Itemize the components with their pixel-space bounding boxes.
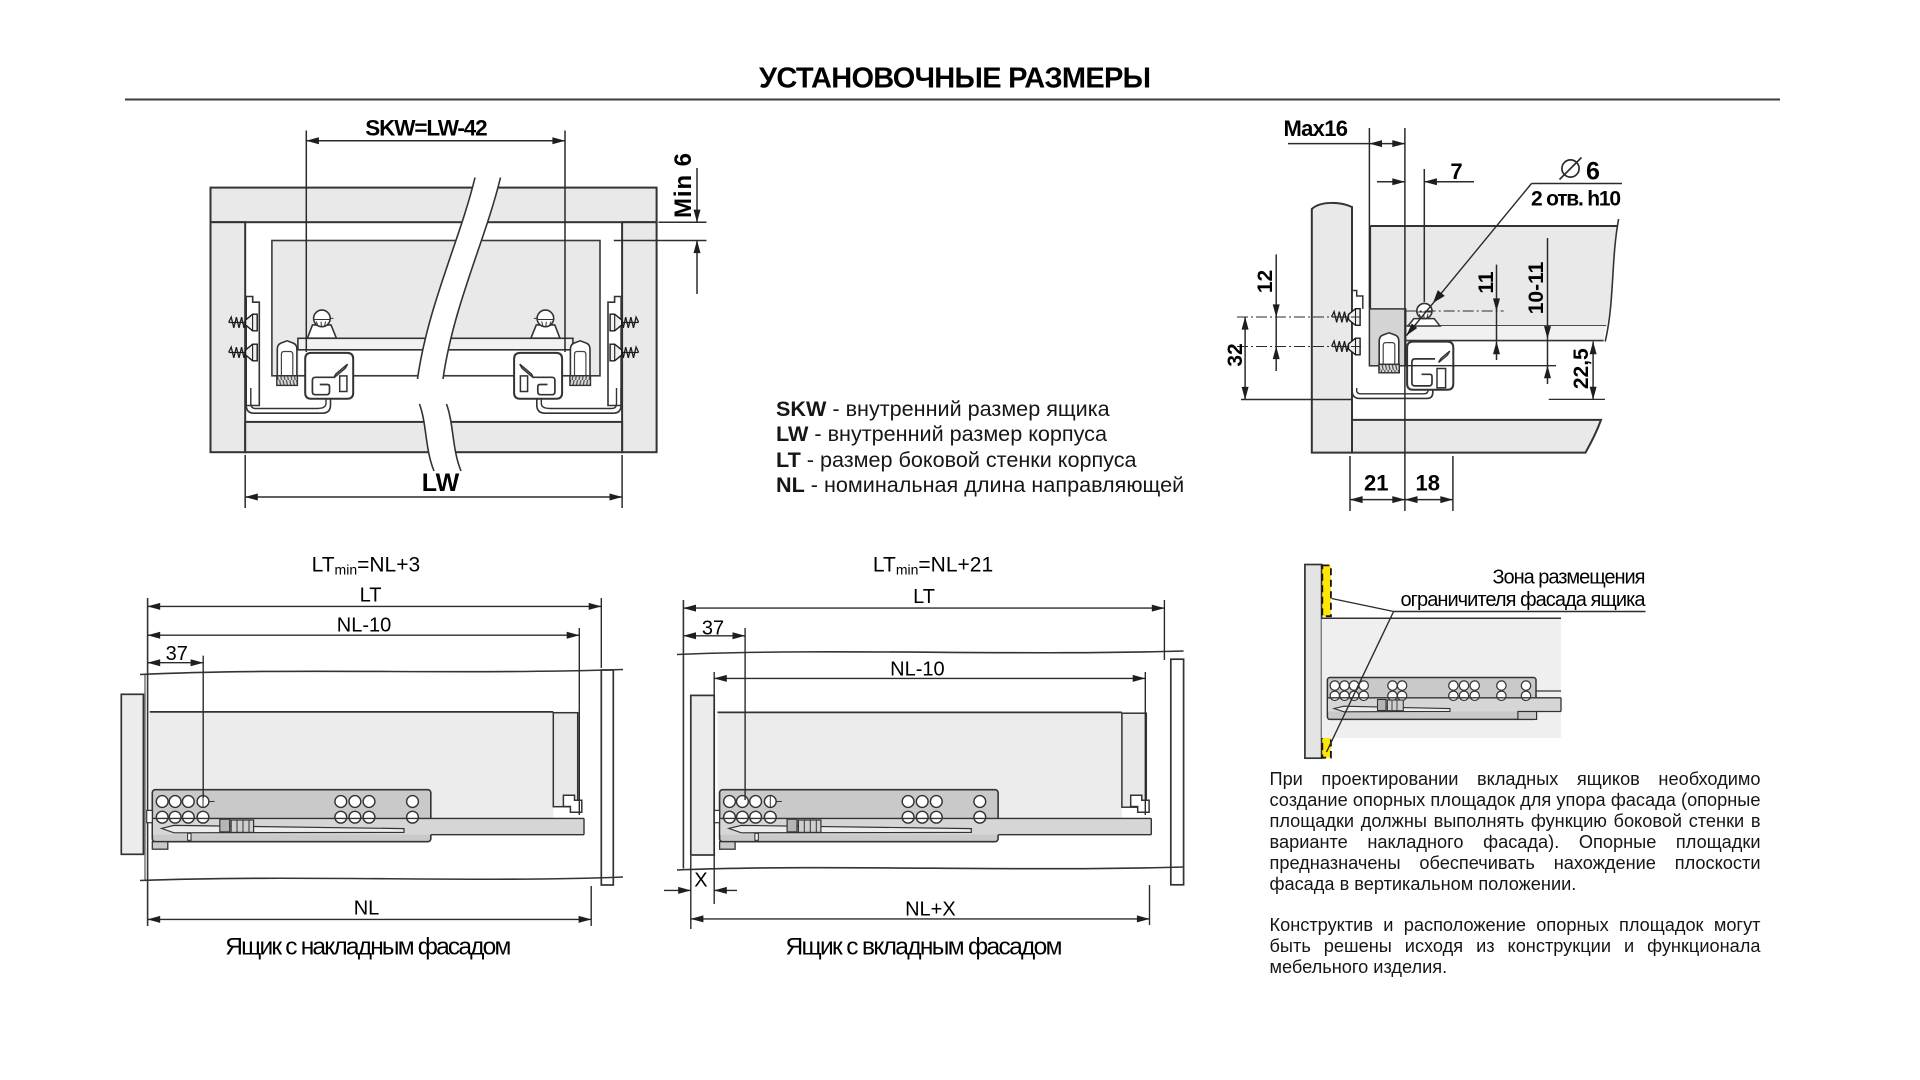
svg-text:NL-10: NL-10 bbox=[890, 658, 944, 680]
svg-text:11: 11 bbox=[1475, 271, 1498, 294]
svg-text:LTmin=NL+21: LTmin=NL+21 bbox=[873, 554, 993, 578]
svg-text:32: 32 bbox=[1224, 343, 1247, 366]
svg-text:ограничителя фасада ящика: ограничителя фасада ящика bbox=[1401, 589, 1647, 611]
svg-text:SKW=LW-42: SKW=LW-42 bbox=[365, 116, 487, 141]
svg-text:Ящик с накладным фасадом: Ящик с накладным фасадом bbox=[225, 934, 511, 961]
svg-text:37: 37 bbox=[702, 617, 724, 639]
svg-text:12: 12 bbox=[1254, 270, 1277, 293]
svg-text:УСТАНОВОЧНЫЕ РАЗМЕРЫ: УСТАНОВОЧНЫЕ РАЗМЕРЫ bbox=[759, 63, 1151, 95]
svg-text:6: 6 bbox=[1586, 158, 1600, 186]
svg-text:LT: LT bbox=[360, 585, 382, 607]
svg-text:10-11: 10-11 bbox=[1525, 261, 1548, 314]
svg-text:22,5: 22,5 bbox=[1570, 348, 1593, 389]
svg-text:NL: NL bbox=[354, 898, 380, 920]
svg-text:LW: LW bbox=[422, 469, 460, 497]
svg-text:Min 6: Min 6 bbox=[670, 153, 697, 218]
svg-text:37: 37 bbox=[166, 643, 188, 665]
svg-text:18: 18 bbox=[1415, 471, 1439, 496]
svg-text:Max16: Max16 bbox=[1284, 116, 1349, 141]
svg-text:LT: LT bbox=[913, 586, 935, 608]
svg-text:NL-10: NL-10 bbox=[337, 615, 391, 637]
svg-text:Ящик с вкладным фасадом: Ящик с вкладным фасадом bbox=[786, 934, 1063, 961]
svg-text:2 отв. h10: 2 отв. h10 bbox=[1531, 188, 1621, 211]
svg-text:7: 7 bbox=[1450, 159, 1462, 184]
svg-text:X: X bbox=[694, 869, 707, 891]
svg-text:21: 21 bbox=[1364, 471, 1388, 496]
svg-text:NL+X: NL+X bbox=[905, 898, 956, 920]
svg-text:Зона размещения: Зона размещения bbox=[1493, 567, 1646, 589]
svg-text:LTmin=NL+3: LTmin=NL+3 bbox=[312, 554, 421, 578]
